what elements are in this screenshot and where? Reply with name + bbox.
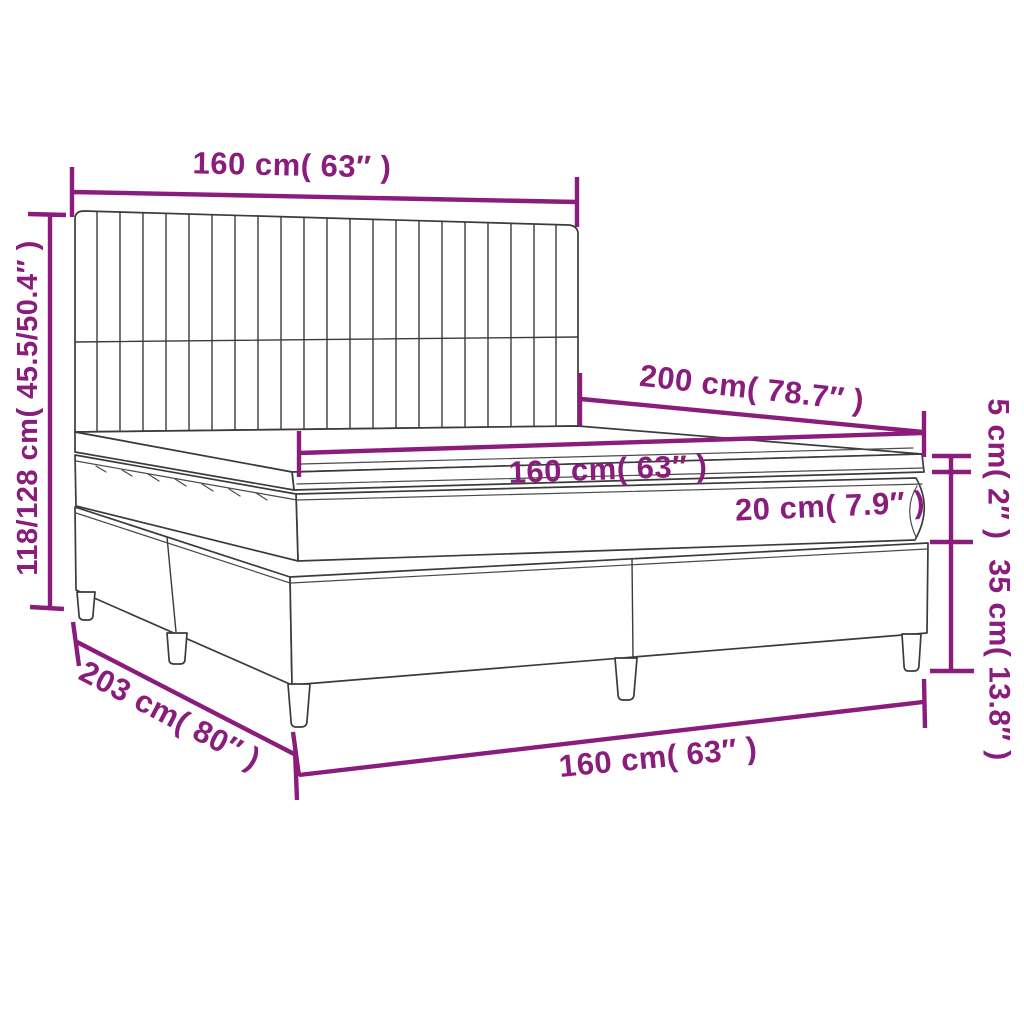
dim-overall-height-label: 118/128 cm( 45.5/50.4″ ) bbox=[12, 240, 44, 575]
bed-leg-back-left bbox=[77, 592, 95, 620]
dim-topper-height-label: 5 cm( 2″ ) bbox=[982, 398, 1015, 539]
bed-leg-front-right bbox=[902, 634, 921, 671]
base-front-seam bbox=[632, 559, 633, 657]
dim-base-width-label: 160 cm( 63″ ) bbox=[557, 730, 758, 784]
dim-base-height-label: 35 cm( 13.8″ ) bbox=[983, 559, 1016, 760]
dim-mattress-width-label: 160 cm( 63″ ) bbox=[508, 448, 708, 490]
dim-overall-height: 118/128 cm( 45.5/50.4″ ) bbox=[12, 214, 66, 609]
dim-base-width: 160 cm( 63″ ) bbox=[295, 679, 925, 800]
bed-leg-left-middle bbox=[167, 633, 187, 664]
dim-overall-length-label: 203 cm( 80″ ) bbox=[74, 654, 267, 777]
base-front-face bbox=[290, 543, 928, 685]
dim-headboard-width-label: 160 cm( 63″ ) bbox=[192, 145, 392, 184]
bed-illustration bbox=[75, 211, 928, 727]
dim-right-bracket-line bbox=[930, 456, 974, 671]
bed-leg-front-left bbox=[288, 684, 310, 727]
dim-base-width-line bbox=[295, 679, 925, 800]
bed-leg-front-middle bbox=[615, 658, 637, 700]
diagram-svg: 160 cm( 63″ ) 118/128 cm( 45.5/50.4″ ) 2… bbox=[0, 0, 1024, 1024]
dim-right-bracket: 5 cm( 2″ ) 35 cm( 13.8″ ) bbox=[930, 398, 1016, 760]
bed-dimension-diagram: 160 cm( 63″ ) 118/128 cm( 45.5/50.4″ ) 2… bbox=[0, 0, 1024, 1024]
